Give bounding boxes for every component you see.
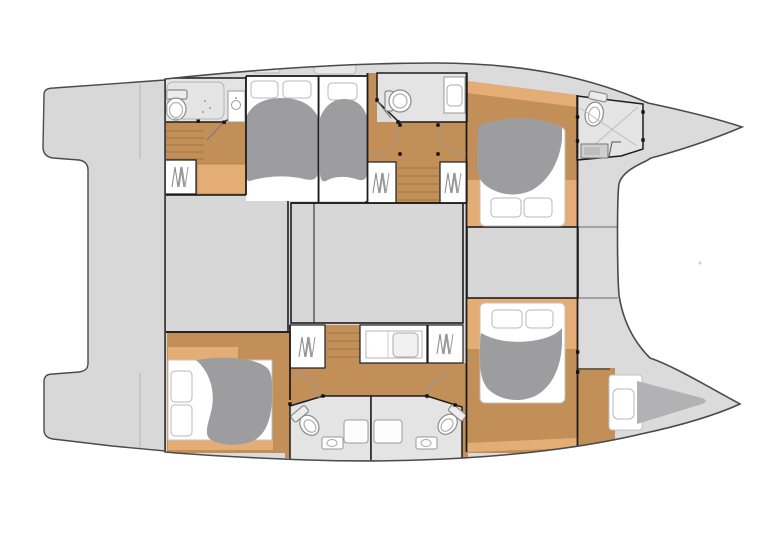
sink [322, 437, 343, 449]
salon-block [291, 203, 463, 323]
pillow [171, 371, 192, 402]
pillow [613, 389, 634, 419]
hinge-dot [396, 120, 399, 123]
hinge-dot [576, 115, 579, 118]
hinge-dot [576, 370, 579, 373]
dresser-bench [197, 164, 246, 194]
toilet [385, 90, 411, 112]
hinge-dot [436, 152, 439, 155]
shower-bench [344, 420, 368, 443]
hinge-dot [288, 402, 291, 405]
duvet [320, 99, 367, 181]
companionway-steps [325, 325, 362, 368]
pillow [283, 81, 311, 98]
hinge-dot [576, 139, 579, 142]
hinge-dot [436, 123, 439, 126]
bed-aft-cabin-port [246, 77, 318, 201]
hinge-dot [641, 110, 644, 113]
foredeck-block [467, 227, 578, 298]
hinge-dot [641, 138, 644, 141]
pillow [171, 405, 192, 436]
shower-drain-dot [202, 111, 204, 113]
hinge-dot [321, 394, 324, 397]
pillow [251, 81, 278, 98]
pillow [491, 198, 521, 217]
hinge-dot [223, 121, 226, 124]
cockpit-block [164, 195, 288, 332]
bed-fwd-cabin-stbd [480, 303, 565, 403]
hinge-dot [398, 152, 401, 155]
pillow [524, 198, 552, 217]
hinge-dot [576, 350, 579, 353]
hinge-dot [197, 120, 200, 123]
duvet [246, 98, 318, 181]
shower-bench [374, 420, 402, 443]
bed-aft-cabin-stbd [168, 358, 272, 445]
corridor-floor [368, 73, 377, 122]
sink [444, 77, 465, 113]
hinge-dot [453, 403, 456, 406]
bed-fwd-cabin-port [477, 118, 565, 226]
shower-drain-dot [204, 100, 206, 102]
catamaran-floor-plan [0, 0, 770, 550]
hinge-dot [375, 98, 378, 101]
shower-drain-dot [209, 107, 211, 109]
hinge-dot [425, 394, 428, 397]
vanity-cabinet [360, 325, 427, 363]
pillow [492, 310, 522, 328]
floor-plan-canvas [0, 0, 770, 550]
deck-fitting-dot [699, 262, 702, 265]
sink [228, 91, 245, 122]
bed-mid-cabin-port [320, 77, 367, 201]
toilet [166, 90, 187, 120]
pillow [526, 310, 553, 328]
vanity-sink [393, 333, 418, 357]
pillow [328, 83, 357, 100]
sink [416, 437, 437, 449]
hinge-dot [398, 123, 401, 126]
